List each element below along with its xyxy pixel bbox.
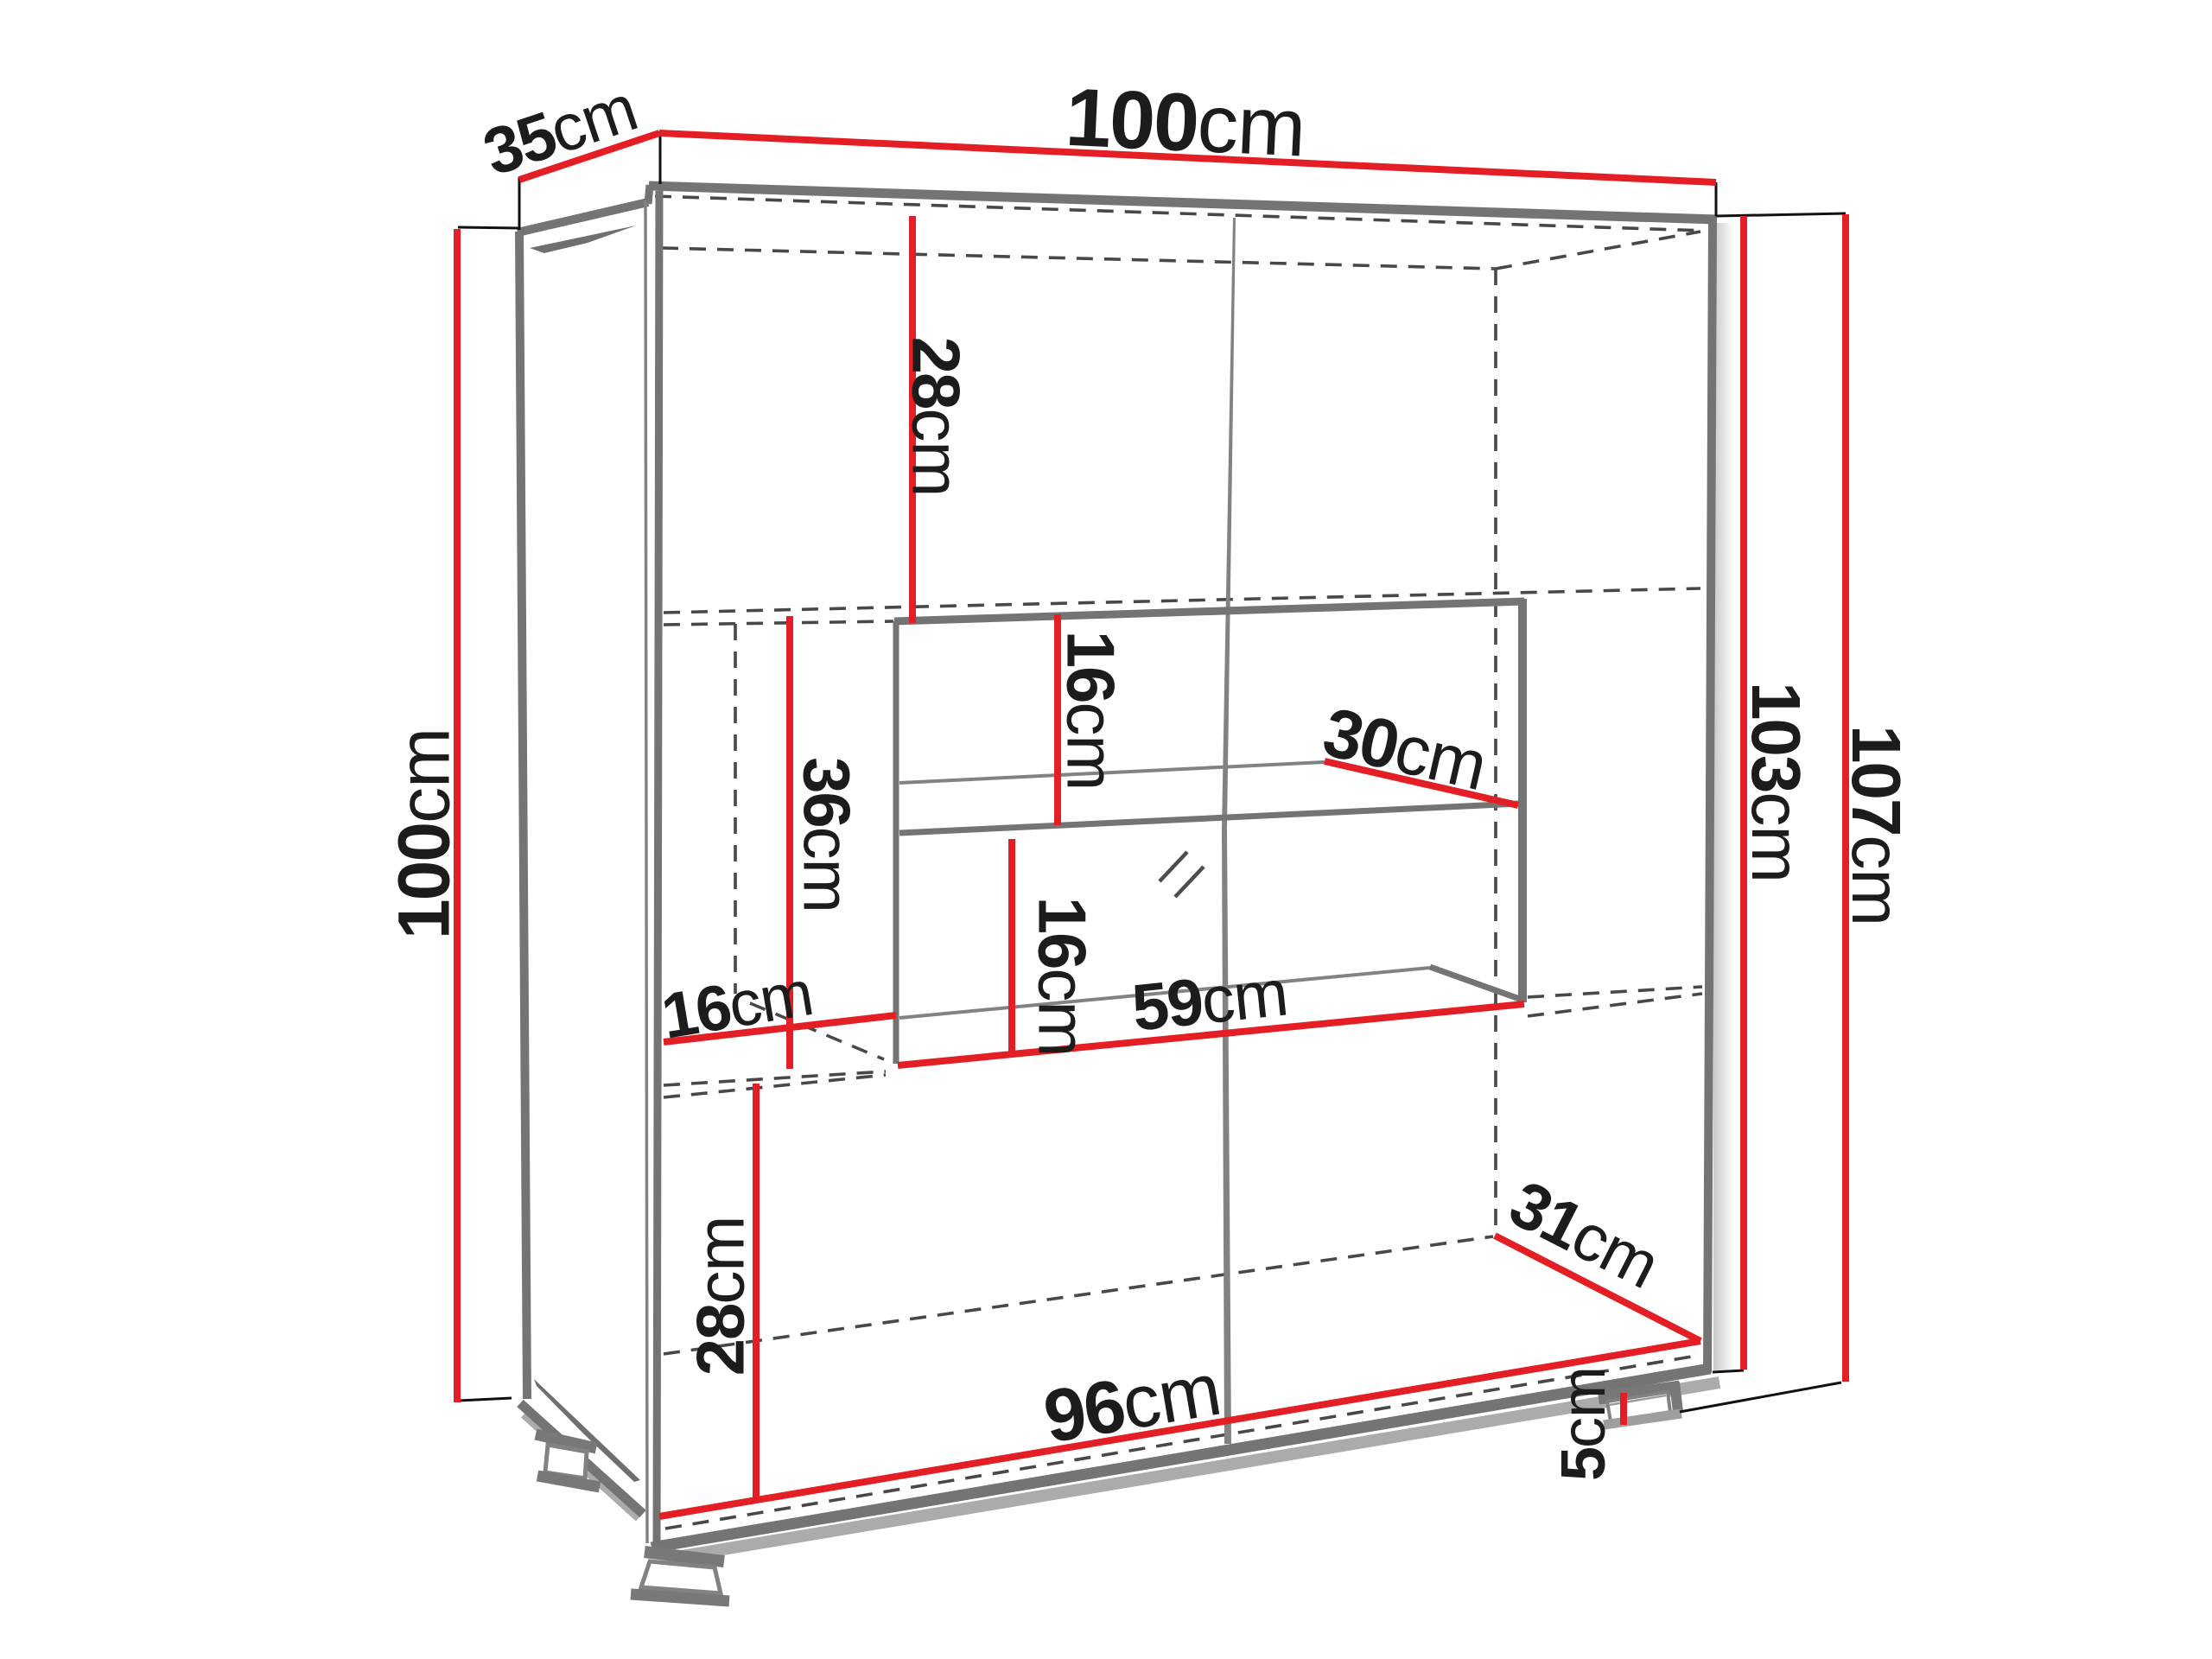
svg-text:5cm: 5cm <box>1549 1367 1618 1481</box>
svg-text:28cm: 28cm <box>899 337 975 497</box>
svg-text:28cm: 28cm <box>682 1217 758 1376</box>
svg-text:16cm: 16cm <box>1053 631 1129 791</box>
svg-text:100cm: 100cm <box>383 728 464 939</box>
svg-text:100cm: 100cm <box>1064 72 1307 175</box>
svg-text:103cm: 103cm <box>1738 682 1815 882</box>
svg-text:16cm: 16cm <box>1025 897 1101 1057</box>
svg-text:107cm: 107cm <box>1838 725 1915 925</box>
svg-text:36cm: 36cm <box>789 757 862 912</box>
